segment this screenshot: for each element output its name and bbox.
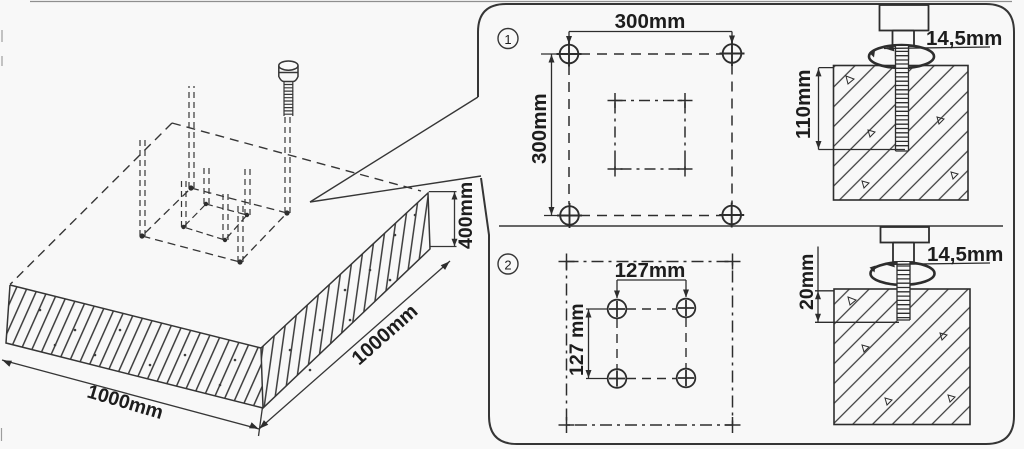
svg-text:110mm: 110mm <box>792 69 815 139</box>
svg-text:20mm: 20mm <box>796 254 818 310</box>
svg-text:400mm: 400mm <box>455 182 477 249</box>
svg-text:300mm: 300mm <box>615 10 686 33</box>
svg-text:14,5mm: 14,5mm <box>927 243 1003 266</box>
svg-text:127mm: 127mm <box>615 259 686 282</box>
svg-text:2: 2 <box>504 258 511 273</box>
svg-text:1: 1 <box>504 32 511 47</box>
svg-text:14,5mm: 14,5mm <box>926 27 1002 50</box>
svg-text:127 mm: 127 mm <box>566 303 588 376</box>
svg-text:300mm: 300mm <box>528 93 551 164</box>
